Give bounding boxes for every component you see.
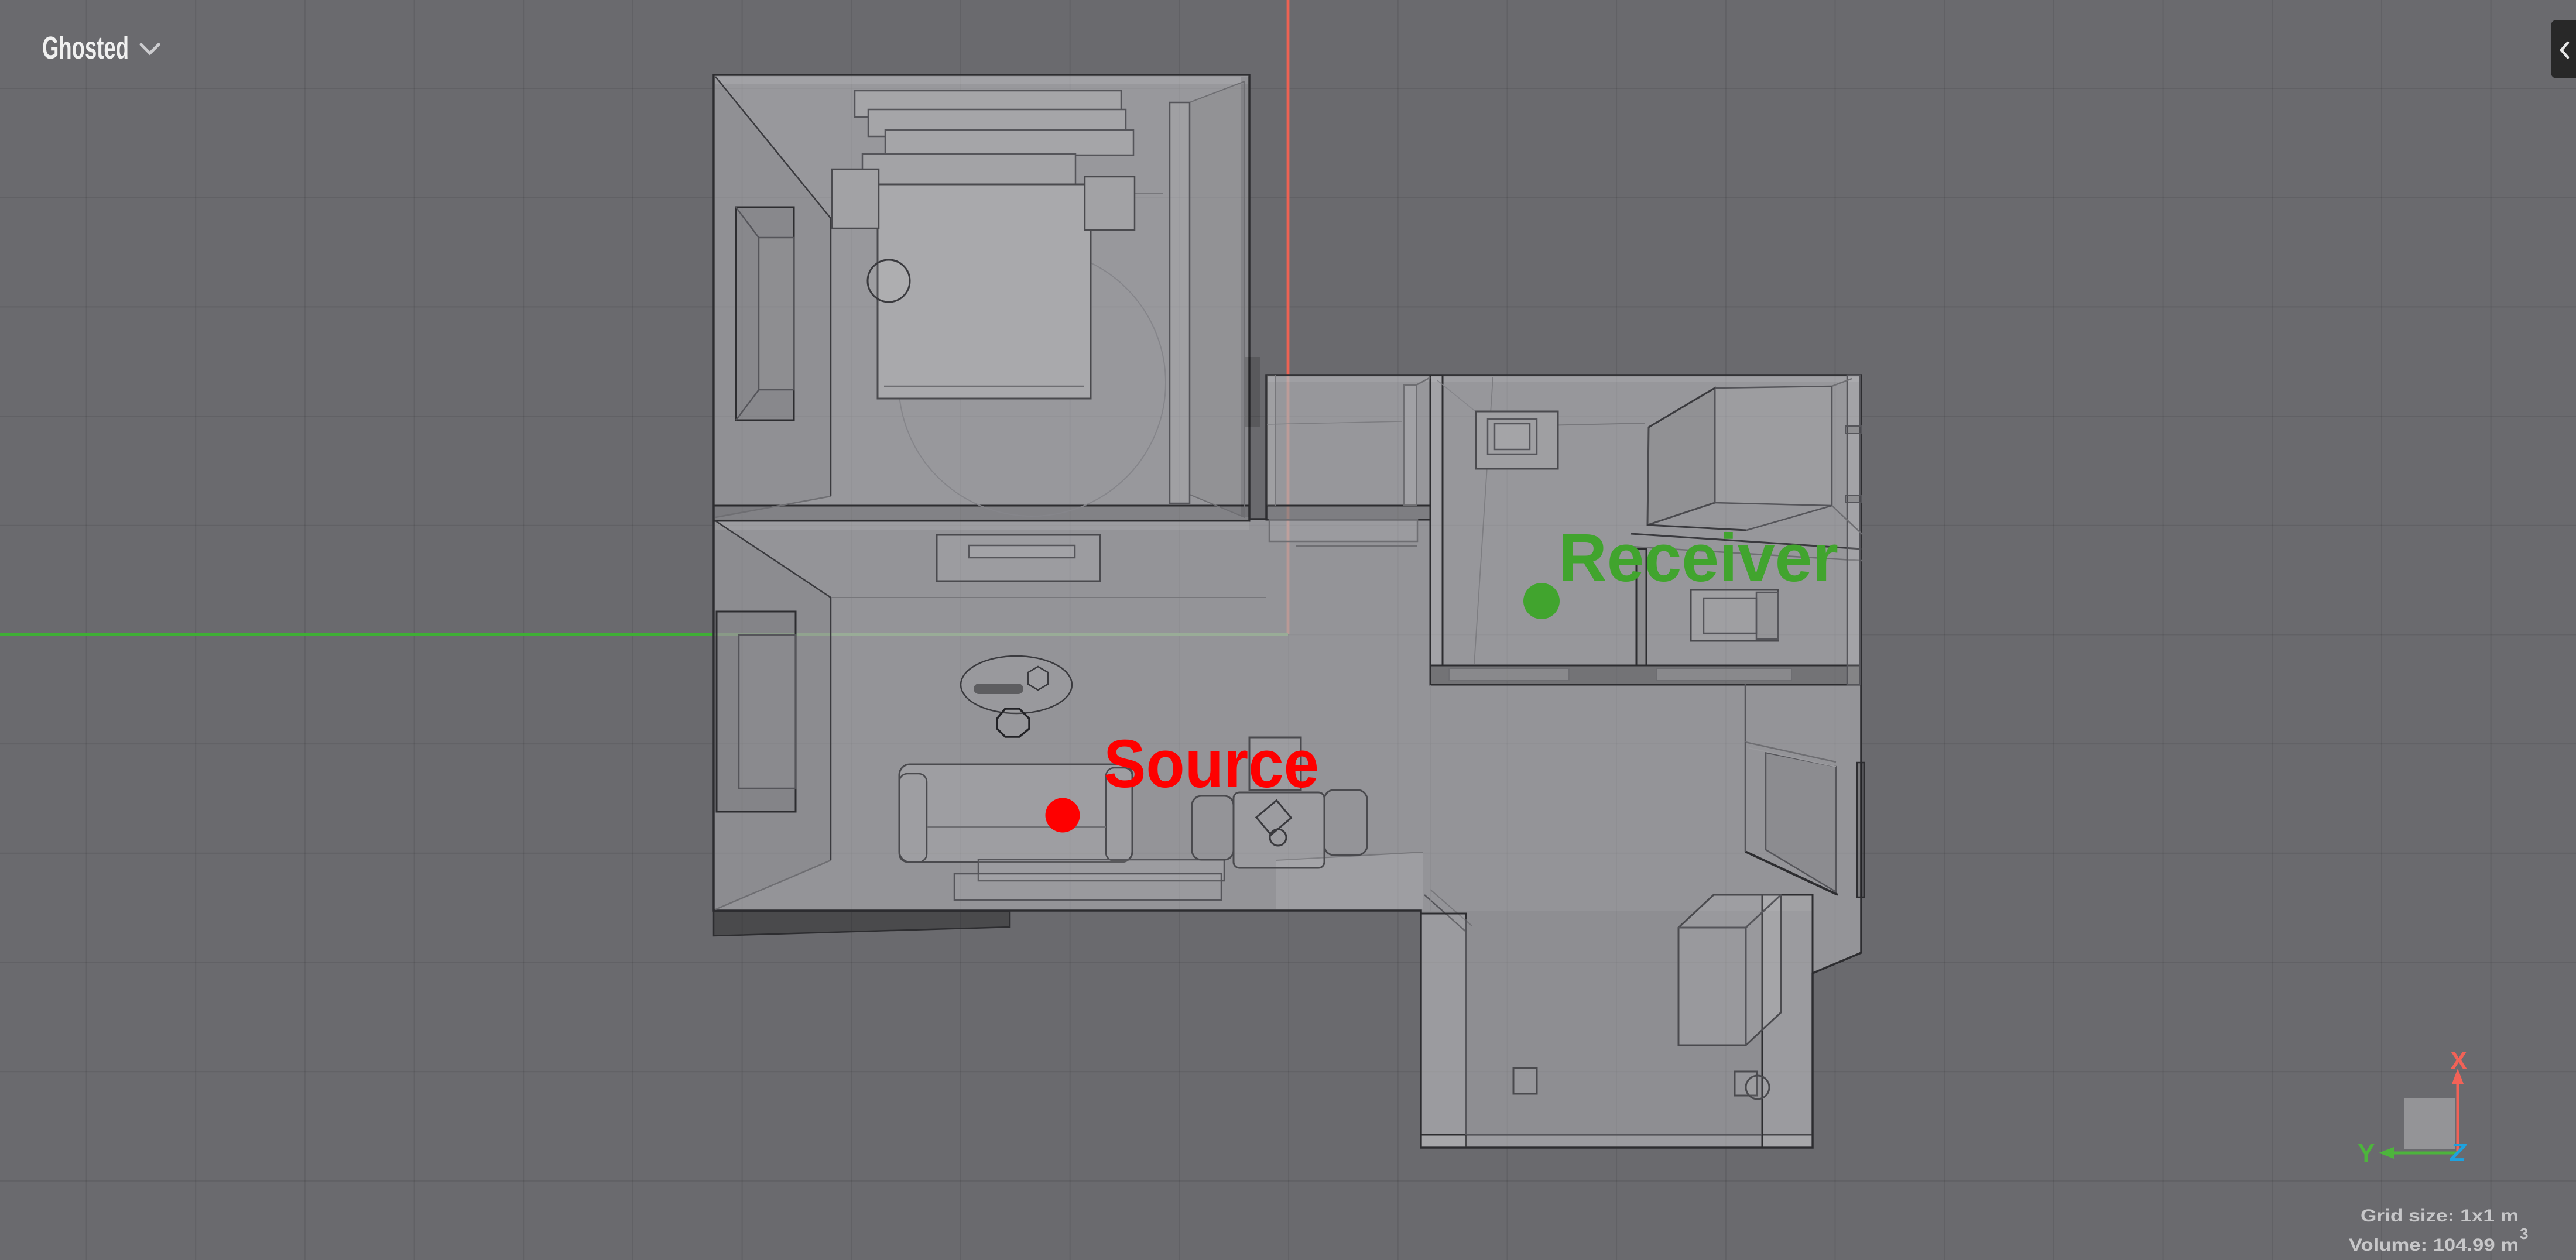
svg-text:X: X [2450, 1046, 2467, 1075]
svg-text:3: 3 [2520, 1225, 2528, 1242]
svg-text:Volume: 104.99 m: Volume: 104.99 m [2349, 1235, 2519, 1255]
svg-text:Z: Z [2449, 1138, 2467, 1167]
svg-text:Ghosted: Ghosted [42, 30, 129, 66]
svg-text:Receiver: Receiver [1558, 520, 1838, 596]
svg-text:Y: Y [2358, 1139, 2375, 1168]
svg-text:Grid size: 1x1 m: Grid size: 1x1 m [2361, 1206, 2519, 1225]
svg-text:Source: Source [1104, 726, 1319, 802]
